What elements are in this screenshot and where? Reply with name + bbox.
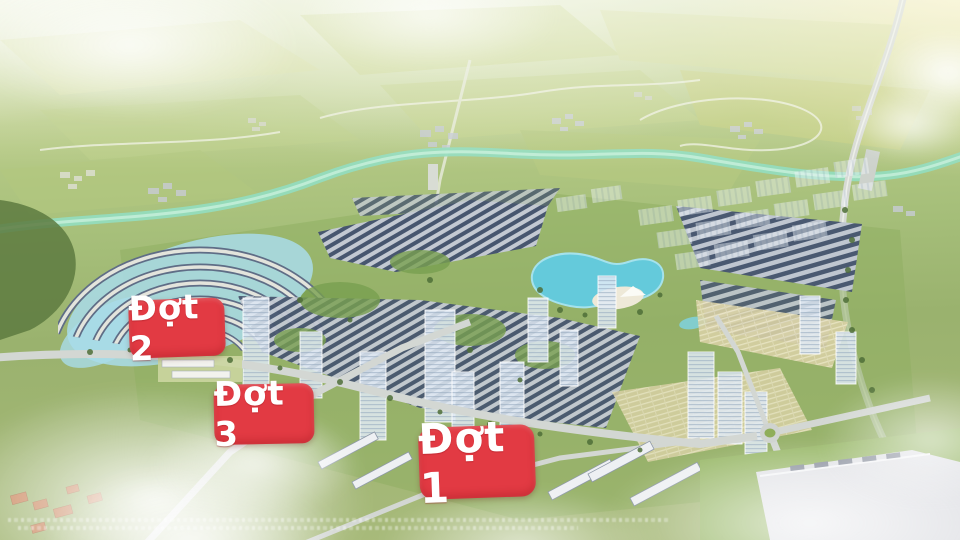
- river-bridge: [428, 164, 438, 190]
- fine-print-watermark-line-2: [18, 526, 578, 530]
- distant-fields: [0, 5, 930, 215]
- phase-1-label: Đợt 1: [417, 411, 536, 513]
- roundabout: [760, 423, 780, 443]
- phase-3-badge: Đợt 3: [213, 383, 314, 445]
- phase-1-badge: Đợt 1: [418, 424, 536, 500]
- phase-2-label: Đợt 2: [128, 286, 227, 369]
- phase-3-label: Đợt 3: [213, 373, 315, 455]
- fine-print-watermark-line-1: [8, 518, 668, 522]
- masterplan-aerial-render: Đợt 2 Đợt 3 Đợt 1: [0, 0, 960, 540]
- phase-2-badge: Đợt 2: [128, 297, 226, 358]
